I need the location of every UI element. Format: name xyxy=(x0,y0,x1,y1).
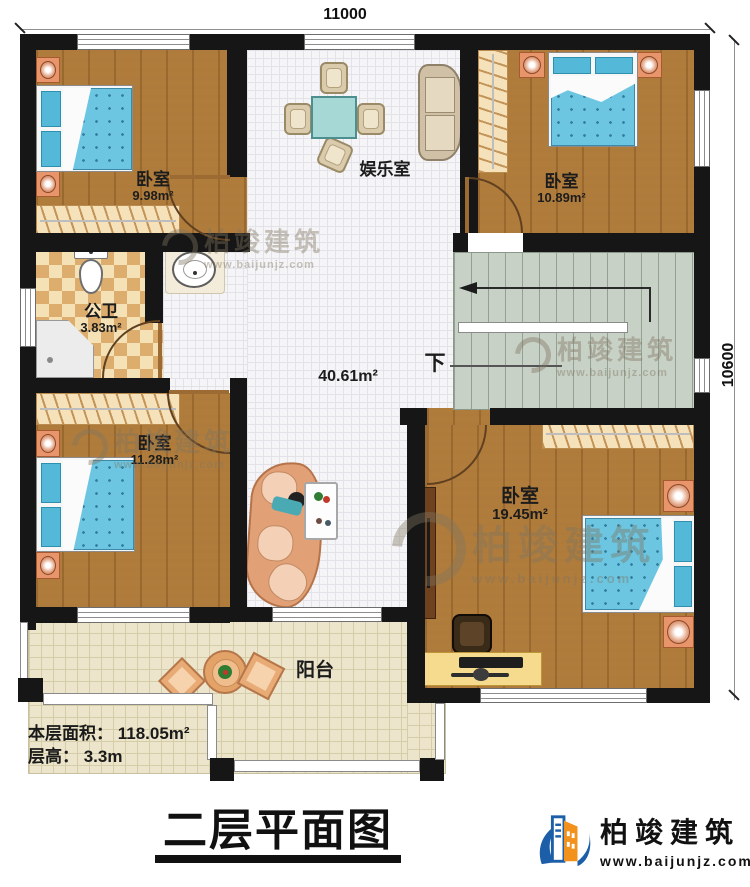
wall xyxy=(407,408,425,688)
brand-url: www.baijunjz.com xyxy=(600,853,750,869)
room-label-bedroom-bl: 卧室 11.28m² xyxy=(107,434,202,468)
chair xyxy=(284,103,312,135)
window xyxy=(20,288,36,347)
stair-arrow-icon xyxy=(459,282,477,294)
window xyxy=(304,34,415,50)
wardrobe-rod xyxy=(546,433,690,435)
wall xyxy=(227,50,247,177)
bedroom-br-doorway-floor xyxy=(427,408,490,425)
room-area: 10.89m² xyxy=(514,191,609,206)
nightstand xyxy=(519,52,545,78)
game-table xyxy=(311,96,357,139)
wardrobe-rod xyxy=(40,408,176,410)
room-label-entertainment: 娱乐室 xyxy=(343,160,427,179)
room-label-balcony: 阳台 xyxy=(278,660,352,681)
dimension-tick xyxy=(704,22,715,33)
nightstand xyxy=(36,552,60,579)
wall xyxy=(382,607,407,622)
nightstand xyxy=(663,616,694,648)
room-label-bedroom-br: 卧室 19.45m² xyxy=(455,486,585,524)
hall-area-label: 40.61m² xyxy=(303,368,393,386)
title-underline xyxy=(155,855,401,863)
floor-info: 本层面积： 118.05m² 层高： 3.3m xyxy=(28,722,190,768)
dimension-height-label: 10600 xyxy=(719,333,739,397)
door-leaf xyxy=(169,390,229,394)
room-name: 阳台 xyxy=(278,660,352,681)
nightstand xyxy=(36,171,60,197)
room-area: 40.61m² xyxy=(303,368,393,386)
desk xyxy=(424,652,542,686)
brand-name: 柏竣建筑 xyxy=(600,811,750,851)
window xyxy=(77,34,190,50)
stair-handrail xyxy=(458,322,628,333)
room-name: 卧室 xyxy=(455,486,585,507)
stair-direction-turn xyxy=(649,288,651,322)
balcony-table xyxy=(203,650,247,694)
dimension-tick xyxy=(14,22,25,33)
toilet xyxy=(74,246,108,296)
room-area: 9.98m² xyxy=(107,189,199,204)
room-name: 卧室 xyxy=(514,172,609,191)
door-leaf xyxy=(425,425,429,483)
wall xyxy=(145,252,163,323)
wall xyxy=(230,378,247,607)
balcony-railing xyxy=(20,622,28,680)
balcony-railing xyxy=(207,705,217,760)
room-label-bedroom-tr: 卧室 10.89m² xyxy=(514,172,609,206)
room-label-bathroom: 公卫 3.83m² xyxy=(55,302,147,336)
window xyxy=(480,688,647,703)
room-area: 11.28m² xyxy=(107,453,202,468)
railing-pillar xyxy=(18,678,43,702)
bed xyxy=(36,85,133,172)
wall xyxy=(20,378,170,393)
window xyxy=(77,607,190,623)
wall xyxy=(647,688,710,703)
wall xyxy=(523,233,710,252)
down-label-line xyxy=(450,365,562,367)
nightstand xyxy=(36,57,60,83)
room-name: 卧室 xyxy=(107,434,202,453)
floor-area-text: 本层面积： 118.05m² xyxy=(28,722,190,745)
brand-logo: 柏竣建筑 www.baijunjz.com xyxy=(534,810,750,870)
wall xyxy=(453,233,468,252)
room-label-bedroom-tl: 卧室 9.98m² xyxy=(107,170,199,204)
balcony-railing xyxy=(435,703,445,760)
wall xyxy=(407,688,480,703)
dimension-line-top xyxy=(20,29,710,30)
stairs-down-label: 下 xyxy=(420,352,450,376)
bed xyxy=(582,515,697,613)
door-leaf xyxy=(158,323,162,378)
nightstand xyxy=(663,480,694,512)
room-name: 公卫 xyxy=(55,302,147,321)
window xyxy=(694,358,710,393)
window xyxy=(694,90,710,167)
bed xyxy=(548,52,638,147)
wall xyxy=(190,607,230,623)
chair xyxy=(320,62,348,94)
wall xyxy=(20,607,77,623)
down-text: 下 xyxy=(420,352,450,376)
wall xyxy=(490,408,710,425)
wardrobe-rod xyxy=(492,54,494,169)
dimension-width-label: 11000 xyxy=(303,4,387,26)
chair xyxy=(357,103,385,135)
nightstand xyxy=(36,430,60,457)
room-area: 3.83m² xyxy=(55,321,147,336)
nightstand xyxy=(636,52,662,78)
page-title: 二层平面图 xyxy=(150,794,406,858)
railing-pillar xyxy=(210,758,234,781)
brand-logo-icon xyxy=(534,810,592,870)
sliding-door xyxy=(272,607,382,622)
door-leaf xyxy=(465,177,469,233)
coffee-table xyxy=(304,482,338,540)
bed xyxy=(36,457,135,552)
floor-height-text: 层高： 3.3m xyxy=(28,745,190,768)
railing-pillar xyxy=(420,758,444,781)
wall xyxy=(230,607,272,622)
balcony-railing xyxy=(234,760,420,772)
sofa xyxy=(418,64,462,161)
floor-plan: 卧室 9.98m² 娱乐室 卧室 10.89m² 公卫 3.83m² 40.61… xyxy=(0,0,750,887)
stair-direction-line xyxy=(476,287,651,289)
wash-basin xyxy=(172,251,216,288)
room-name: 娱乐室 xyxy=(343,160,427,179)
balcony-railing xyxy=(43,693,213,705)
desk-chair xyxy=(452,614,492,654)
room-area: 19.45m² xyxy=(455,507,585,524)
room-name: 卧室 xyxy=(107,170,199,189)
wardrobe-rod xyxy=(40,220,176,222)
